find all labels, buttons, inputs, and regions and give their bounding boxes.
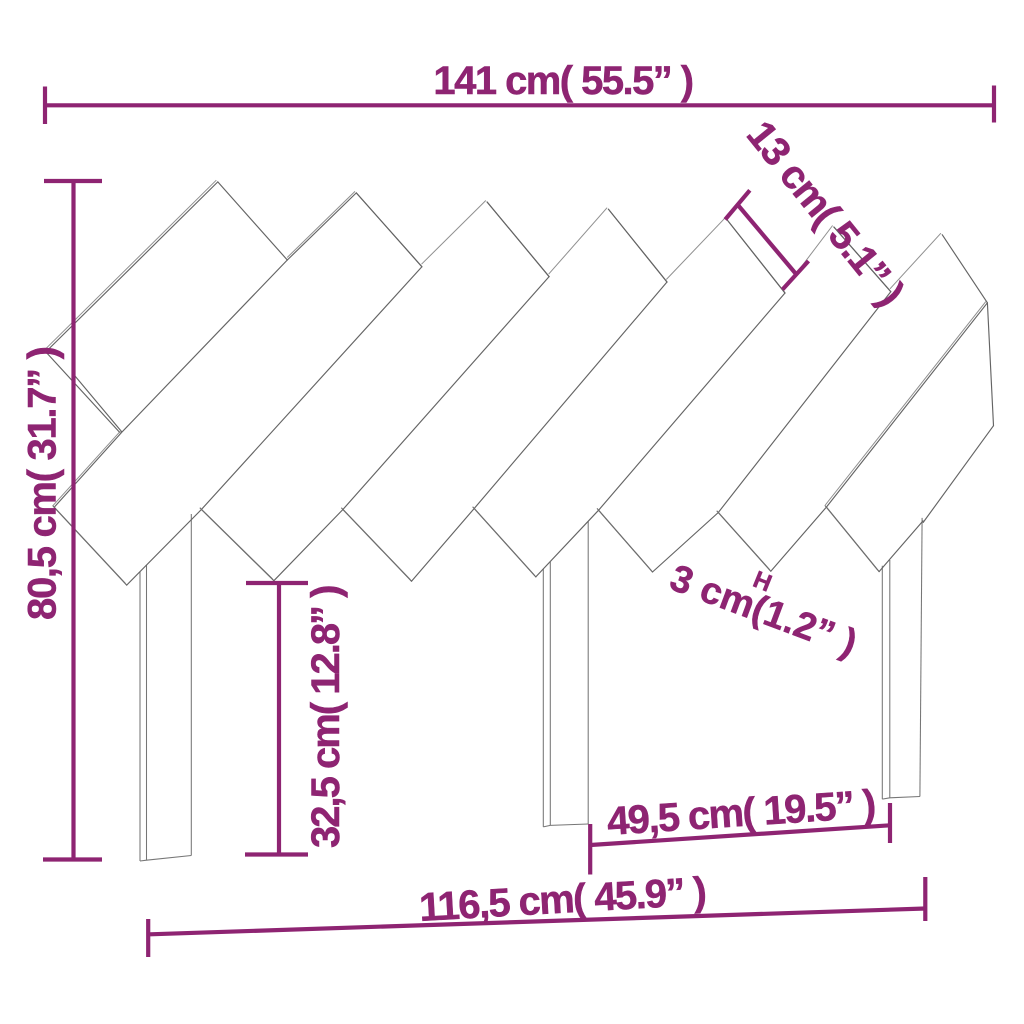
- svg-text:141 cm( 55.5” ): 141 cm( 55.5” ): [433, 59, 692, 103]
- svg-text:80,5 cm( 31.7” ): 80,5 cm( 31.7” ): [21, 347, 65, 620]
- svg-text:32,5 cm( 12.8” ): 32,5 cm( 12.8” ): [304, 586, 348, 848]
